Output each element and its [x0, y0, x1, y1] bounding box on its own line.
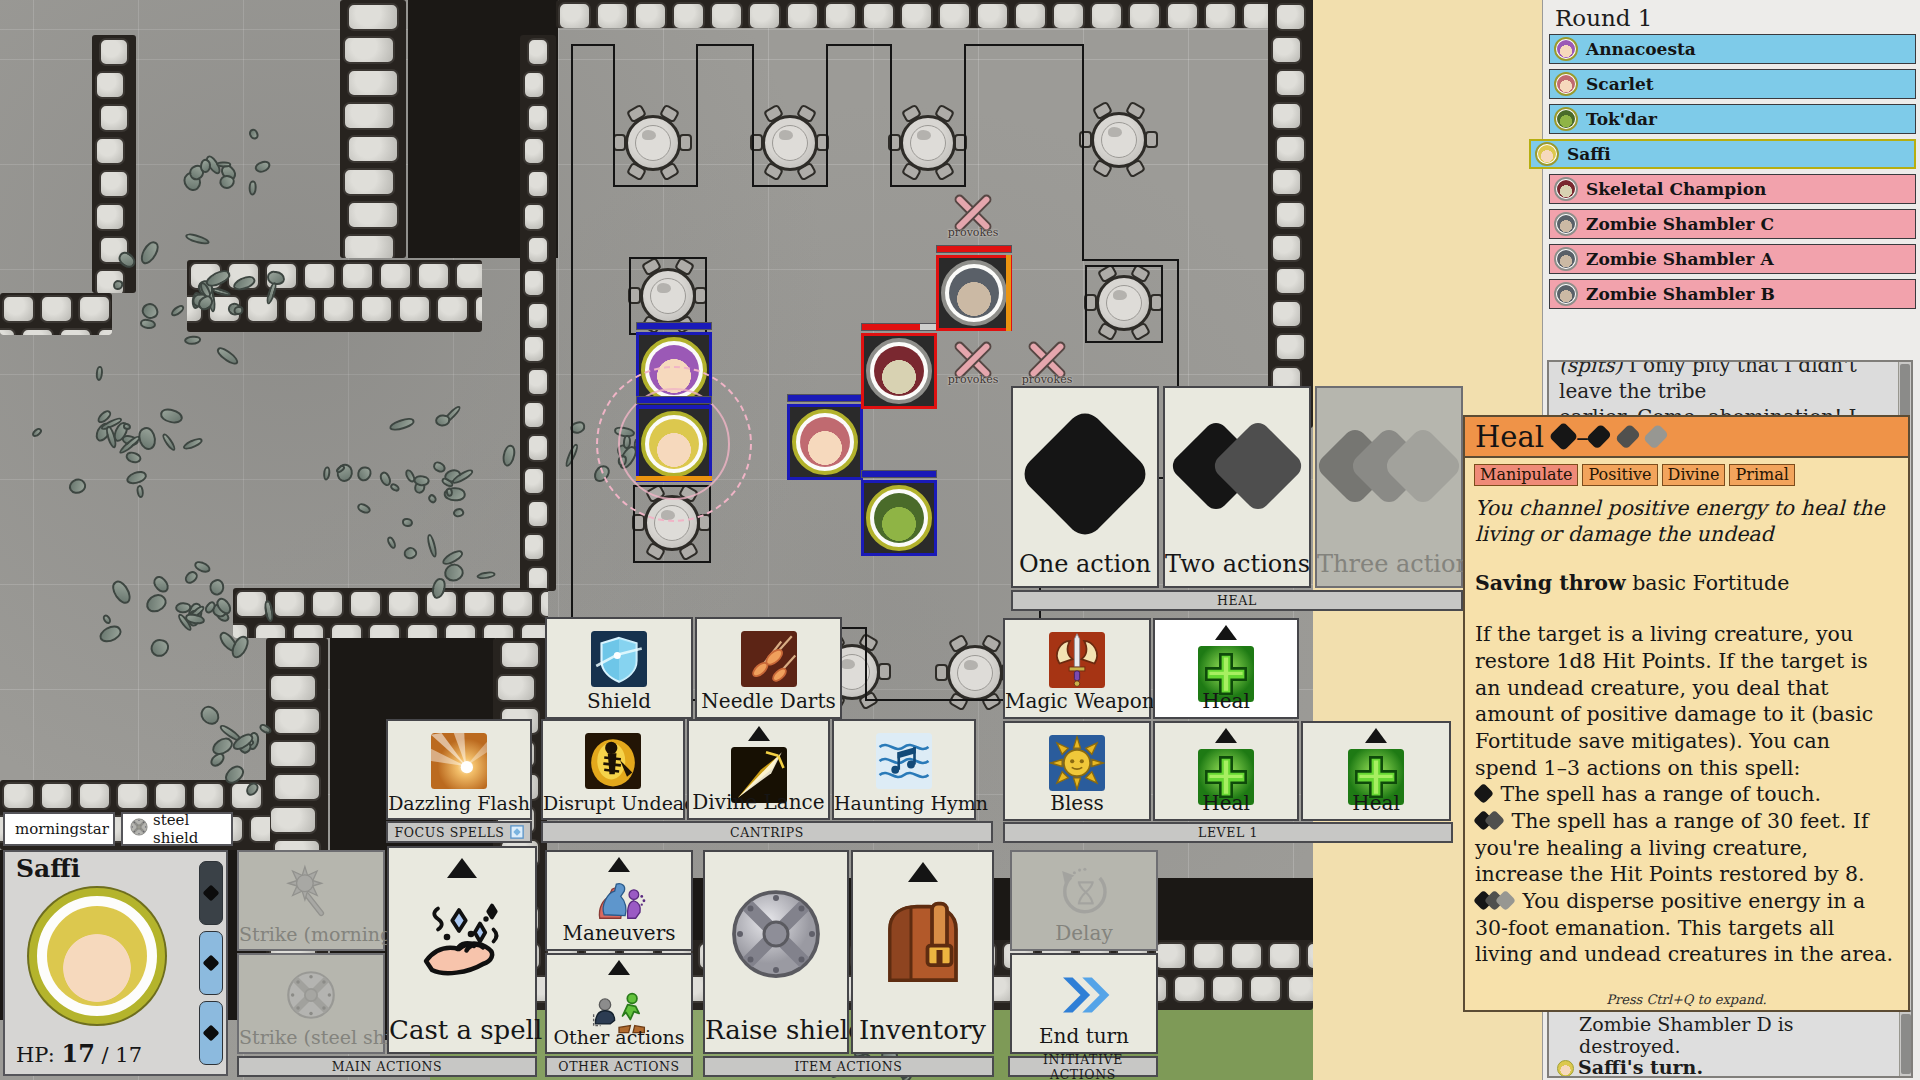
- wall-brick: [596, 2, 629, 28]
- wall-brick: [40, 782, 73, 810]
- weapon-chip-steel-shield[interactable]: steel shield: [121, 812, 233, 846]
- initiative-name: Tok'dar: [1586, 109, 1657, 129]
- token-hp-bar: [636, 322, 712, 330]
- portrait-face: [949, 268, 999, 318]
- table-smudge: [964, 660, 978, 670]
- initiative-row-zombie-shambler-b[interactable]: Zombie Shambler B: [1549, 279, 1916, 309]
- stone-wall: [556, 0, 1313, 28]
- wall-brick: [343, 234, 395, 258]
- action-pip-avail: [199, 931, 223, 995]
- wall-brick: [527, 104, 549, 132]
- action-pip-avail: [199, 1001, 223, 1065]
- action-diamond-icon: [1017, 406, 1153, 542]
- map-token-skeletal-champion[interactable]: [861, 333, 937, 409]
- initiative-name: Zombie Shambler B: [1586, 284, 1775, 304]
- token-hp-fill: [937, 246, 1011, 252]
- wall-brick: [748, 2, 781, 28]
- wall-brick: [273, 773, 321, 801]
- group-bar-other-actions: OTHER ACTIONS: [545, 1056, 693, 1077]
- portrait-face: [1557, 75, 1575, 93]
- picker-option-label: One action: [1013, 550, 1157, 578]
- wall-brick: [482, 623, 515, 638]
- group-bar-cantrips: CANTRIPS: [541, 821, 993, 843]
- wall-brick: [379, 262, 412, 290]
- dialog-line: (spits) I only pity that I didn't leave …: [1559, 360, 1889, 404]
- spell-card-haunting-hymn[interactable]: Haunting Hymn: [832, 719, 976, 820]
- picker-option-two-actions[interactable]: Two actions: [1163, 386, 1311, 588]
- initiative-portrait: [1554, 282, 1578, 306]
- wall-brick: [1271, 102, 1302, 130]
- rubble-rock: [425, 533, 439, 558]
- table-smudge: [779, 130, 793, 140]
- rubble-rock: [570, 421, 587, 435]
- wall-brick: [95, 203, 125, 231]
- spell-card-heal-selected[interactable]: Heal: [1153, 618, 1299, 719]
- rubble-rock: [476, 570, 495, 580]
- wall-brick: [417, 262, 450, 290]
- map-token-scarlet[interactable]: [787, 404, 863, 480]
- wall-brick: [527, 368, 549, 396]
- expand-arrow-icon: [748, 726, 770, 741]
- action-card-inventory[interactable]: Inventory: [851, 850, 994, 1054]
- initiative-row-zombie-shambler-c[interactable]: Zombie Shambler C: [1549, 209, 1916, 239]
- wall-brick: [40, 295, 73, 323]
- wall-brick: [496, 674, 536, 702]
- rubble-rock: [502, 444, 517, 468]
- portrait-face: [800, 417, 850, 467]
- rubble-rock: [143, 590, 170, 616]
- action-pip-used: [199, 861, 223, 925]
- expand-arrow-icon: [1215, 625, 1237, 640]
- rubble-rock: [402, 517, 414, 527]
- card-label: Delay: [1012, 921, 1156, 945]
- rubble-rock: [208, 578, 227, 598]
- wall-brick: [1204, 2, 1237, 28]
- rubble-rock: [214, 345, 240, 368]
- round-title: Round 1: [1555, 5, 1652, 31]
- wall-brick: [474, 295, 482, 323]
- picker-option-label: Three actions: [1317, 550, 1461, 578]
- wall-brick: [444, 623, 477, 638]
- wall-brick: [292, 623, 325, 638]
- wall-brick: [1271, 234, 1302, 262]
- group-bar-label: FOCUS SPELLS: [394, 825, 504, 840]
- card-label: Heal: [1155, 689, 1297, 713]
- wall-brick: [1271, 168, 1302, 196]
- round-table: [890, 105, 966, 181]
- action-diamond-icon: [1586, 424, 1612, 450]
- table-smudge: [1108, 127, 1122, 137]
- disrupt-undead-icon: [585, 733, 641, 789]
- token-ring: [866, 485, 932, 551]
- map-token-saffi[interactable]: [636, 406, 712, 482]
- initiative-name: Saffi: [1567, 144, 1611, 164]
- wall-brick: [269, 806, 317, 834]
- wall-brick: [1275, 201, 1306, 229]
- initiative-name: Scarlet: [1586, 74, 1654, 94]
- rubble-rock: [95, 366, 103, 381]
- card-label: Maneuvers: [547, 921, 691, 945]
- wall-brick: [99, 170, 129, 198]
- action-card-maneuvers[interactable]: Maneuvers: [545, 850, 693, 951]
- token-hp-bar: [936, 245, 1012, 253]
- rubble-rock: [124, 469, 148, 488]
- trait-divine[interactable]: Divine: [1662, 464, 1726, 486]
- facing-marker: [1006, 255, 1011, 331]
- initiative-name: Zombie Shambler C: [1586, 214, 1774, 234]
- card-label: Magic Weapon: [1005, 689, 1149, 713]
- wall-brick: [269, 740, 317, 768]
- token-hp-fill: [862, 471, 936, 477]
- rubble-rock: [248, 181, 256, 196]
- wall-brick: [938, 2, 971, 28]
- wall-brick: [634, 2, 667, 28]
- wall-brick: [523, 533, 545, 561]
- wall-brick: [1271, 36, 1302, 64]
- token-hp-fill: [862, 324, 920, 330]
- portrait-face: [1557, 110, 1575, 128]
- action-card-end-turn[interactable]: End turn: [1010, 953, 1158, 1054]
- table-top: [1096, 275, 1152, 331]
- spell-card-heal-2[interactable]: Heal: [1301, 721, 1451, 821]
- combat-log: Zombie Shambler D is destroyed.Saffi's t…: [1547, 1010, 1913, 1078]
- wall-brick: [1090, 2, 1123, 28]
- end-turn-icon: [1056, 967, 1112, 1023]
- wall-brick: [78, 295, 111, 323]
- wall-brick: [330, 623, 363, 638]
- bless-icon: [1049, 735, 1105, 791]
- picker-caption-label: HEAL: [1217, 593, 1257, 608]
- wall-brick: [1275, 135, 1306, 163]
- wall-brick: [343, 102, 395, 130]
- wall-brick: [116, 782, 149, 810]
- initiative-portrait: [1535, 142, 1559, 166]
- token-hp-fill: [788, 395, 862, 401]
- action-card-strike-morningstar: Strike (morningstar): [237, 850, 385, 951]
- token-hp-bar: [861, 323, 937, 331]
- wall-brick: [1192, 942, 1225, 970]
- card-label: Inventory: [853, 1015, 992, 1045]
- wall-brick: [1249, 975, 1282, 1003]
- heal-description: If the target is a living creature, you …: [1475, 621, 1898, 967]
- wall-brick: [360, 295, 393, 323]
- wall-brick: [710, 2, 743, 28]
- table-smudge: [642, 130, 656, 140]
- token-hp-fill: [637, 323, 711, 329]
- table-top: [640, 268, 696, 324]
- expand-arrow-icon: [1365, 728, 1387, 743]
- character-name: Saffi: [16, 854, 80, 883]
- portrait-face: [874, 346, 924, 396]
- wall-brick: [349, 590, 382, 618]
- wall-brick: [1275, 333, 1306, 361]
- group-bar-label: MAIN ACTIONS: [332, 1059, 443, 1074]
- wall-brick: [387, 590, 420, 618]
- expand-arrow-icon: [1215, 728, 1237, 743]
- table-top: [625, 115, 681, 171]
- wall-brick: [1154, 942, 1187, 970]
- wall-brick: [154, 782, 187, 810]
- map-token-zombie-shambler[interactable]: [936, 255, 1012, 331]
- wall-brick: [343, 168, 395, 196]
- wall-brick: [21, 328, 54, 335]
- cast-spell-icon: [414, 892, 510, 988]
- table-smudge: [841, 659, 855, 669]
- wall-brick: [672, 2, 705, 28]
- wall-brick: [343, 36, 395, 64]
- token-hp-bar: [636, 396, 712, 404]
- wall-brick: [99, 38, 129, 66]
- initiative-row-skeletal-champion[interactable]: Skeletal Champion: [1549, 174, 1916, 204]
- wall-brick: [235, 590, 268, 618]
- rubble-rock: [159, 407, 184, 425]
- portrait-face: [1557, 250, 1575, 268]
- spell-card-magic-weapon[interactable]: Magic Weapon: [1003, 618, 1151, 719]
- picker-diamonds: [1317, 414, 1461, 534]
- character-portrait[interactable]: [29, 888, 165, 1024]
- stone-wall: [520, 35, 556, 591]
- wall-brick: [322, 295, 355, 323]
- wall-brick: [1306, 942, 1313, 970]
- wall-brick: [523, 137, 545, 165]
- initiative-row-annacoesta[interactable]: Annacoesta: [1549, 34, 1916, 64]
- spell-card-bless[interactable]: Bless: [1003, 721, 1151, 821]
- rubble-rock: [323, 466, 331, 480]
- wall-brick: [59, 328, 92, 335]
- token-ring: [941, 260, 1007, 326]
- rubble-rock: [108, 578, 135, 607]
- rubble-rock: [30, 426, 43, 439]
- action-card-raise-shield[interactable]: Raise shield: [703, 850, 849, 1054]
- wall-brick: [1230, 942, 1263, 970]
- trait-manipulate[interactable]: Manipulate: [1474, 464, 1578, 486]
- wall-brick: [463, 590, 496, 618]
- wall-brick: [249, 815, 270, 843]
- group-bar-initiative-actions: INITIATIVE ACTIONS: [1008, 1056, 1158, 1077]
- wall-brick: [192, 782, 225, 810]
- rubble-rock: [149, 637, 171, 659]
- wall-brick: [527, 500, 549, 528]
- haunting-hymn-icon: [876, 733, 932, 789]
- table-top: [762, 115, 818, 171]
- card-label: Needle Darts: [697, 689, 840, 713]
- action-diamond-icon: [1473, 783, 1494, 804]
- wall-brick: [1128, 2, 1161, 28]
- token-ring: [792, 409, 858, 475]
- rubble-rock: [161, 432, 178, 452]
- shield-spell-icon: [591, 631, 647, 687]
- rubble-rock: [216, 161, 231, 168]
- picker-caption-bar: HEAL: [1011, 590, 1463, 611]
- table-top: [1091, 112, 1147, 168]
- initiative-row-saffi[interactable]: Saffi: [1529, 139, 1916, 169]
- heal-saving-throw: Saving throw basic Fortitude: [1475, 571, 1898, 595]
- initiative-row-tok-dar[interactable]: Tok'dar: [1549, 104, 1916, 134]
- group-bar-label: ITEM ACTIONS: [795, 1059, 903, 1074]
- group-bar-label: OTHER ACTIONS: [558, 1059, 679, 1074]
- wall-brick: [273, 641, 321, 669]
- portrait-face: [1557, 40, 1575, 58]
- wall-brick: [527, 236, 549, 264]
- portrait-face: [874, 493, 924, 543]
- wall-brick: [1052, 2, 1085, 28]
- character-panel: Saffi HP: 17 / 17: [3, 850, 228, 1076]
- card-label: Disrupt Undead: [543, 792, 683, 814]
- wall-brick: [347, 3, 399, 31]
- rubble-rock: [66, 475, 88, 497]
- weapon-chip-morningstar[interactable]: morningstar: [3, 812, 115, 846]
- shield-round-icon: [283, 967, 339, 1023]
- initiative-portrait: [1554, 37, 1578, 61]
- portrait-face: [649, 419, 699, 469]
- portrait-face: [1557, 215, 1575, 233]
- action-card-other-actions[interactable]: Other actions: [545, 953, 693, 1054]
- focus-point-icon: [510, 825, 524, 839]
- wall-brick: [347, 69, 399, 97]
- wall-brick: [523, 467, 545, 495]
- wall-brick: [500, 641, 540, 669]
- spell-card-divine-lance[interactable]: Divine Lance: [687, 719, 830, 820]
- wall-brick: [523, 401, 545, 429]
- card-label: Dazzling Flash: [388, 792, 530, 814]
- stone-wall: [187, 260, 482, 332]
- picker-option-label: Two actions: [1165, 550, 1309, 578]
- initiative-portrait: [1554, 107, 1578, 131]
- map-token-tok-dar[interactable]: [861, 480, 937, 556]
- group-bar-item-actions: ITEM ACTIONS: [703, 1056, 994, 1077]
- card-label: Strike (morningstar): [239, 923, 383, 945]
- wall-brick: [2, 782, 35, 810]
- table-smudge: [657, 283, 671, 293]
- portrait-face: [1557, 285, 1575, 303]
- action-card-delay: Delay: [1010, 850, 1158, 951]
- rubble-rock: [185, 232, 211, 246]
- wall-brick: [284, 295, 317, 323]
- needle-darts-icon: [741, 631, 797, 687]
- rubble-rock: [184, 335, 201, 345]
- wall-brick: [311, 590, 344, 618]
- card-label: Divine Lance: [689, 790, 828, 814]
- expand-arrow-icon: [608, 960, 630, 975]
- wall-brick: [347, 135, 399, 163]
- spell-card-dazzling-flash[interactable]: Dazzling Flash: [386, 719, 532, 820]
- wall-brick: [523, 269, 545, 297]
- action-diamond-icon: [1549, 422, 1579, 452]
- log-scrollbar[interactable]: [1899, 1012, 1911, 1076]
- wall-brick: [1014, 2, 1047, 28]
- initiative-portrait: [1554, 212, 1578, 236]
- card-label: Haunting Hymn: [834, 792, 974, 814]
- wall-brick: [1275, 267, 1306, 295]
- rubble-rock: [181, 436, 204, 452]
- wall-brick: [527, 302, 549, 330]
- wall-brick: [1271, 300, 1302, 328]
- weapon-chip-label: steel shield: [153, 811, 225, 847]
- rubble-rock: [170, 303, 187, 319]
- table-top: [900, 115, 956, 171]
- wall-brick: [246, 295, 279, 323]
- wall-brick: [269, 674, 317, 702]
- wall-brick: [2, 295, 35, 323]
- picker-option-one-action[interactable]: One action: [1011, 386, 1159, 588]
- wall-brick: [0, 328, 16, 335]
- action-card-strike-steel-shield: Strike (steel shield): [237, 953, 385, 1054]
- heal-flavor-text: You channel positive energy to heal the …: [1475, 495, 1898, 547]
- table-top: [947, 645, 1003, 701]
- spell-card-disrupt-undead[interactable]: Disrupt Undead: [541, 719, 685, 820]
- inventory-icon: [875, 896, 971, 992]
- weapon-chip-label: morningstar: [15, 820, 109, 838]
- game-screen: { "palette": { "ally_blue": "#7ecbe9", "…: [0, 0, 1920, 1080]
- rubble-rock: [388, 415, 416, 433]
- stone-wall: [0, 293, 112, 335]
- token-ring: [641, 411, 707, 477]
- rubble-rock: [123, 423, 132, 431]
- card-label: Strike (steel shield): [239, 1026, 383, 1048]
- card-label: Shield: [547, 689, 691, 713]
- expand-arrow-icon: [608, 857, 630, 872]
- log-line: Saffi's turn.: [1557, 1057, 1893, 1078]
- trait-primal[interactable]: Primal: [1729, 464, 1794, 486]
- initiative-name: Annacoesta: [1586, 39, 1696, 59]
- wall-brick: [273, 707, 321, 735]
- dazzling-flash-icon: [431, 733, 487, 789]
- wall-brick: [520, 623, 548, 638]
- rubble-rock: [124, 450, 143, 466]
- provokes-label: provokes: [1016, 373, 1078, 386]
- action-cost-icons: –: [1553, 425, 1638, 449]
- wall-brick: [99, 104, 129, 132]
- log-line: Zombie Shambler D is destroyed.: [1557, 1014, 1893, 1057]
- one-action-icon: [1553, 426, 1574, 447]
- action-card-cast-a-spell[interactable]: Cast a spell: [387, 846, 537, 1054]
- action-diamond-icon: [1643, 424, 1669, 450]
- card-label: Cast a spell: [389, 1015, 535, 1045]
- rubble-rock: [356, 502, 372, 515]
- portrait-face: [1557, 180, 1575, 198]
- spell-tooltip-heal: Heal – ManipulatePositiveDivinePrimal Yo…: [1463, 415, 1910, 1012]
- spell-card-needle-darts[interactable]: Needle Darts: [695, 617, 842, 719]
- initiative-row-zombie-shambler-a[interactable]: Zombie Shambler A: [1549, 244, 1916, 274]
- rubble-rock: [402, 544, 420, 561]
- wall-brick: [501, 590, 534, 618]
- wall-brick: [1287, 975, 1313, 1003]
- wall-brick: [527, 38, 549, 66]
- trait-positive[interactable]: Positive: [1582, 464, 1657, 486]
- wall-brick: [786, 2, 819, 28]
- picker-diamonds: [1165, 414, 1309, 534]
- group-bar-label: INITIATIVE ACTIONS: [1010, 1052, 1156, 1080]
- round-table: [752, 105, 828, 181]
- round-table: [1086, 265, 1162, 341]
- wall-brick: [406, 623, 439, 638]
- token-hp-bar: [787, 394, 863, 402]
- token-ring: [866, 338, 932, 404]
- token-hp-fill: [637, 397, 711, 403]
- wall-brick: [398, 295, 431, 323]
- table-smudge: [917, 130, 931, 140]
- saffi-mini-icon: [1557, 1060, 1574, 1077]
- spell-card-shield[interactable]: Shield: [545, 617, 693, 719]
- expand-arrow-icon: [447, 858, 477, 878]
- initiative-row-scarlet[interactable]: Scarlet: [1549, 69, 1916, 99]
- picker-diamonds: [1013, 414, 1157, 534]
- hp-readout: HP: 17 / 17: [16, 1039, 142, 1068]
- spell-card-heal-1[interactable]: Heal: [1153, 721, 1299, 821]
- one-to-three-actions-icon: [1591, 426, 1638, 447]
- wall-brick: [78, 782, 111, 810]
- wall-brick: [523, 203, 545, 231]
